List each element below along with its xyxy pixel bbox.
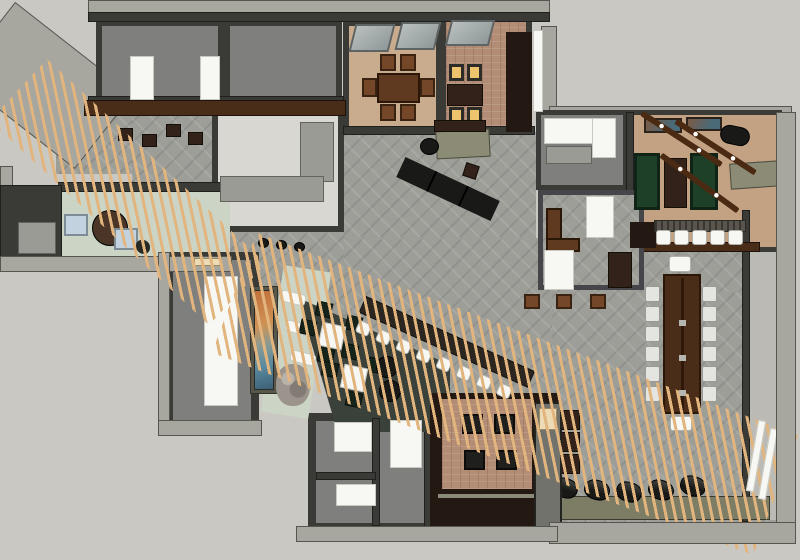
doorway: [200, 56, 220, 100]
skylight: [445, 20, 495, 46]
bar-counter-end: [630, 222, 656, 248]
roof-bottom-right-band: [549, 522, 796, 544]
dining-chair: [362, 78, 377, 97]
roof-right-edge: [776, 112, 796, 544]
table-clamp: [679, 320, 686, 326]
kitchen-island: [220, 176, 324, 202]
bar-stool-white: [710, 230, 725, 245]
dining-chair: [400, 104, 416, 121]
bar-stool-white: [728, 230, 743, 245]
bar-stool-white: [656, 230, 671, 245]
kitchen-counter: [300, 122, 334, 182]
bar-stool-white: [674, 230, 689, 245]
bar-stool-white: [692, 230, 707, 245]
corridor-gap: [533, 30, 543, 112]
table-end-chair: [669, 256, 691, 272]
room-top-left-b: [224, 20, 342, 102]
table-chair: [645, 326, 660, 342]
table-chair: [702, 326, 717, 342]
pantry-counter: [592, 118, 616, 158]
roof-right-wing-column: [541, 26, 557, 118]
booth-dark-wall: [506, 32, 532, 132]
bar-stool: [188, 132, 203, 145]
dining-chair: [380, 54, 396, 71]
service-counter: [435, 129, 490, 160]
table-chair: [702, 286, 717, 302]
restroom-doorway: [336, 484, 376, 506]
game-table-green: [634, 153, 660, 210]
dining-chair: [380, 104, 396, 121]
round-table-black: [420, 138, 439, 155]
booth-table: [447, 84, 483, 106]
bar-stool: [142, 134, 157, 147]
office-cabinet: [608, 252, 632, 288]
office-table: [586, 196, 614, 238]
table-chair: [645, 346, 660, 362]
service-shelf: [434, 120, 486, 132]
bar-stool: [166, 124, 181, 137]
office-sofa: [544, 250, 574, 290]
west-entry-door: [18, 222, 56, 254]
table-clamp: [679, 355, 686, 361]
waiting-stool: [590, 294, 606, 309]
roof-corridor-bottom: [158, 420, 262, 436]
table-chair: [645, 286, 660, 302]
waiting-stool: [524, 294, 540, 309]
doorway: [130, 56, 154, 100]
skylight: [395, 22, 442, 50]
waiting-stool: [556, 294, 572, 309]
service-bar-band: [84, 100, 346, 116]
restroom-divider: [316, 472, 376, 480]
table-chair: [702, 366, 717, 382]
pantry-bench: [546, 146, 592, 164]
skylight: [349, 24, 396, 52]
blue-chair: [64, 214, 88, 236]
glowing-booth-seat: [467, 64, 482, 81]
pantry-counter: [544, 118, 594, 144]
table-chair: [702, 306, 717, 322]
dining-chair: [420, 78, 435, 97]
roof-bottom-center-band: [296, 526, 558, 542]
restroom-doorway: [334, 422, 372, 452]
dining-table: [377, 73, 420, 103]
glowing-booth-seat: [449, 64, 464, 81]
table-chair: [702, 346, 717, 362]
floor-plan-render: [0, 0, 800, 560]
table-chair: [645, 306, 660, 322]
dining-chair: [400, 54, 416, 71]
